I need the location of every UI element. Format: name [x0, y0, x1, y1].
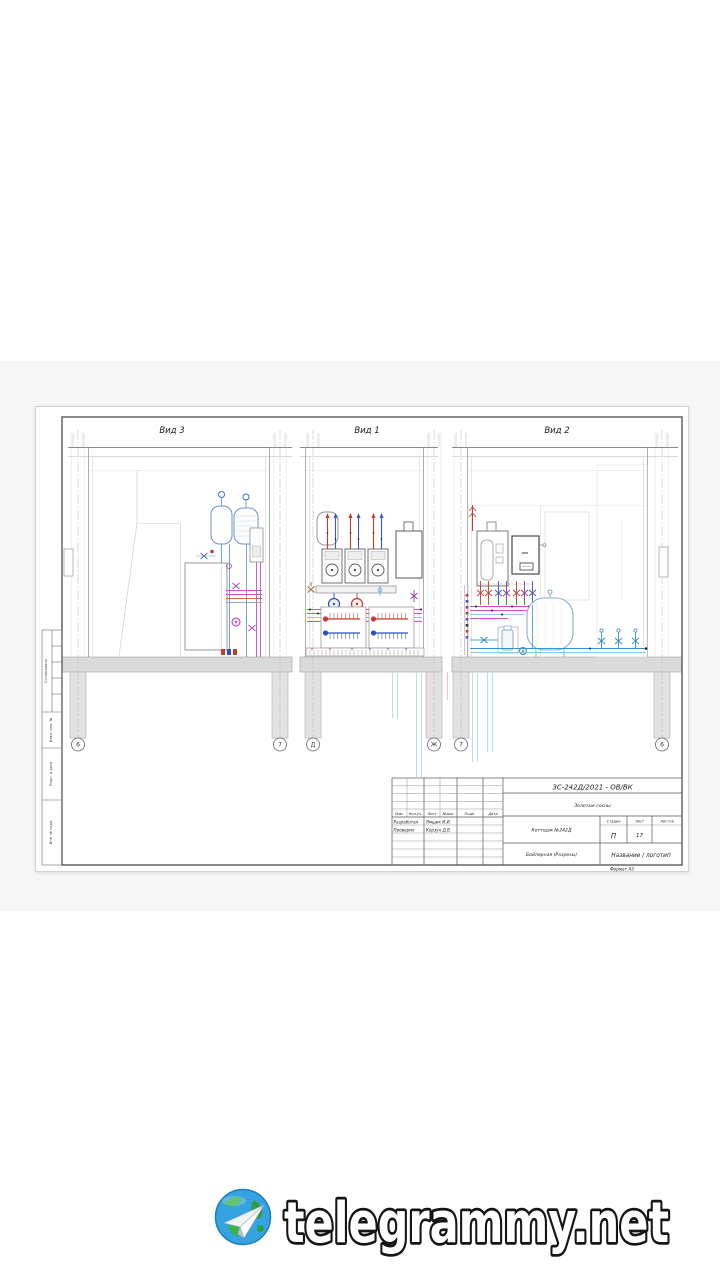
watermark — [214, 1188, 272, 1250]
page: 6 7 Д Ж 7 6 Вид 3 Вид 1 Вид 2 — [0, 0, 720, 1280]
watermark-text: telegrammy.net — [284, 1191, 669, 1256]
globe-paper-plane-icon — [214, 1188, 272, 1246]
drawing-sheet — [35, 406, 689, 872]
watermark-text-svg: telegrammy.net — [282, 1188, 682, 1258]
